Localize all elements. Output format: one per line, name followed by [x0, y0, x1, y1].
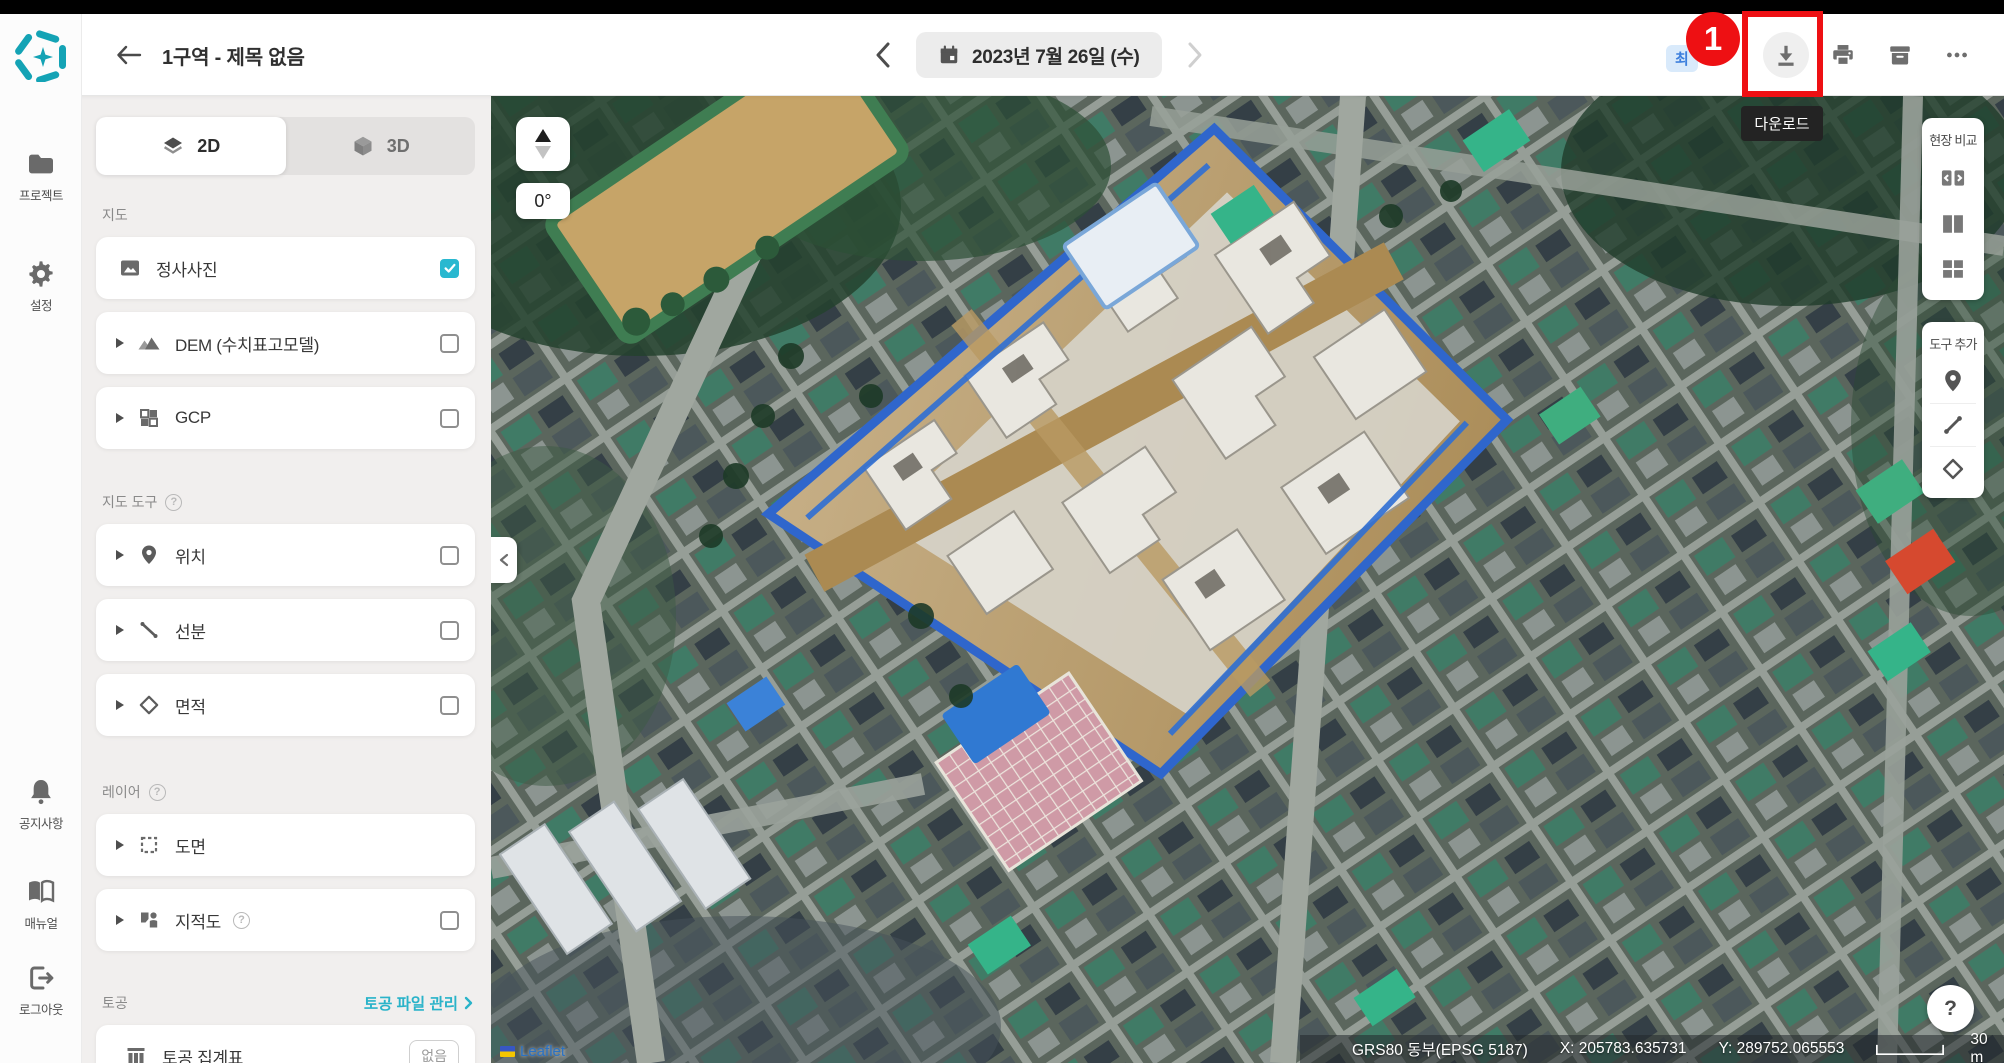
date-navigator: 2023년 7월 26일 (수)	[868, 14, 1210, 96]
rail-item-label: 프로젝트	[19, 185, 63, 204]
expand-caret-icon[interactable]	[116, 338, 124, 348]
expand-caret-icon[interactable]	[116, 915, 124, 925]
line-tool-icon	[1940, 412, 1966, 438]
section-layers-label: 레이어 ?	[102, 782, 475, 802]
toggle-3d[interactable]: 3D	[286, 117, 476, 175]
earthwork-summary-label: 토공 집계표	[162, 1044, 243, 1063]
help-button[interactable]: ?	[1927, 985, 1974, 1032]
section-title: 레이어	[102, 782, 141, 802]
page-title: 1구역 - 제목 없음	[162, 41, 305, 70]
area-checkbox[interactable]	[440, 696, 459, 715]
tool-card-area[interactable]: 면적	[96, 674, 475, 736]
compare-two-pane-button[interactable]	[1930, 201, 1976, 247]
site-compare-panel: 현장 비교	[1922, 118, 1984, 300]
tool-card-label: 선분	[175, 618, 206, 643]
toggle-2d[interactable]: 2D	[96, 117, 286, 175]
scale-bar-icon	[1876, 1043, 1944, 1056]
header-left: 1구역 - 제목 없음	[112, 14, 305, 96]
tool-card-segment[interactable]: 선분	[96, 599, 475, 661]
section-title: 지도	[102, 205, 128, 225]
map-statusbar: GRS80 동부(EPSG 5187) X: 205783.635731 Y: …	[1300, 1035, 2004, 1063]
toggle-2d-label: 2D	[197, 136, 220, 157]
attribution-label: Leaflet	[520, 1043, 565, 1060]
rail-item-logout[interactable]: 로그아웃	[0, 962, 82, 1018]
annotation-highlight-box	[1742, 11, 1823, 97]
rail-item-label: 매뉴얼	[24, 913, 57, 932]
chevron-right-icon	[464, 996, 473, 1010]
rail-item-projects[interactable]: 프로젝트	[0, 148, 82, 204]
polygon-tool-icon	[1940, 456, 1966, 482]
tool-card-label: 위치	[175, 543, 206, 568]
map-scale: 30 m	[1876, 1031, 1999, 1063]
add-area-button[interactable]	[1930, 446, 1976, 490]
line-segment-icon	[137, 618, 161, 642]
rail-item-settings[interactable]: 설정	[0, 258, 82, 314]
link-label: 토공 파일 관리	[364, 992, 458, 1014]
back-button[interactable]	[112, 38, 146, 72]
earthwork-summary-card[interactable]: 토공 집계표 없음	[96, 1025, 475, 1063]
add-location-button[interactable]	[1930, 359, 1976, 403]
bell-icon	[25, 776, 57, 808]
segment-checkbox[interactable]	[440, 621, 459, 640]
annotation-step-badge: 1	[1686, 12, 1740, 66]
cadastral-map-icon	[137, 908, 161, 932]
earthwork-file-manage-link[interactable]: 토공 파일 관리	[364, 992, 473, 1014]
satellite-imagery	[491, 96, 2004, 1063]
rail-item-label: 공지사항	[19, 813, 63, 832]
layer-card-label: 정사사진	[156, 256, 217, 281]
layers-icon	[161, 134, 185, 158]
brand-logo-icon	[15, 30, 67, 82]
logout-icon	[25, 962, 57, 994]
location-pin-icon	[137, 543, 161, 567]
expand-caret-icon[interactable]	[116, 550, 124, 560]
cursor-x-coordinate: X: 205783.635731	[1560, 1040, 1687, 1058]
expand-caret-icon[interactable]	[116, 700, 124, 710]
layer-card-label: GCP	[175, 408, 211, 428]
rail-item-manual[interactable]: 매뉴얼	[0, 876, 82, 932]
four-grid-icon	[1939, 255, 1967, 283]
chevron-right-icon	[1187, 41, 1203, 69]
chevron-left-icon	[498, 553, 510, 567]
ellipsis-icon	[1944, 42, 1970, 68]
orthophoto-checkbox[interactable]	[440, 259, 459, 278]
print-button[interactable]	[1820, 32, 1866, 78]
toggle-3d-label: 3D	[387, 136, 410, 157]
expand-caret-icon[interactable]	[116, 625, 124, 635]
app-rail: 프로젝트 설정 공지사항 매뉴얼 로그아웃	[0, 14, 82, 1063]
leaflet-attribution[interactable]: Leaflet	[500, 1043, 565, 1060]
layer-card-drawing[interactable]: 도면	[96, 814, 475, 876]
arrow-left-icon	[116, 44, 142, 66]
compare-four-grid-button[interactable]	[1930, 246, 1976, 292]
archive-box-icon	[1887, 42, 1913, 68]
dashed-square-icon	[137, 833, 161, 857]
cadastral-checkbox[interactable]	[440, 911, 459, 930]
app-logo[interactable]	[15, 30, 67, 82]
section-map-label: 지도	[102, 205, 475, 225]
calendar-icon	[938, 44, 960, 66]
compass-control[interactable]	[516, 117, 570, 171]
chevron-left-icon	[875, 41, 891, 69]
dem-checkbox[interactable]	[440, 334, 459, 353]
earthwork-none-badge: 없음	[409, 1040, 459, 1063]
expand-caret-icon[interactable]	[116, 413, 124, 423]
section-tools-label: 지도 도구 ?	[102, 492, 475, 512]
rail-item-label: 설정	[30, 295, 52, 314]
map-heading-readout: 0°	[516, 183, 570, 219]
site-compare-label: 현장 비교	[1929, 130, 1976, 149]
layers-sidebar: 2D 3D 지도 정사사진	[82, 96, 491, 1063]
gcp-grid-icon	[137, 406, 161, 430]
image-icon	[118, 256, 142, 280]
crs-label: GRS80 동부(EPSG 5187)	[1352, 1038, 1528, 1060]
location-checkbox[interactable]	[440, 546, 459, 565]
view-mode-toggle: 2D 3D	[96, 117, 475, 175]
location-pin-icon	[1940, 368, 1966, 394]
more-button[interactable]	[1934, 32, 1980, 78]
window-topbar	[0, 0, 2004, 14]
help-circle-icon[interactable]: ?	[233, 912, 250, 929]
layer-card-dem[interactable]: DEM (수치표고모델)	[96, 312, 475, 374]
next-date-button[interactable]	[1180, 35, 1210, 75]
archive-button[interactable]	[1877, 32, 1923, 78]
book-icon	[25, 876, 57, 908]
printer-icon	[1830, 42, 1856, 68]
date-picker-button[interactable]: 2023년 7월 26일 (수)	[916, 32, 1162, 78]
two-pane-icon	[1939, 210, 1967, 238]
help-circle-icon[interactable]: ?	[165, 494, 182, 511]
map-viewport[interactable]: 0° 현장 비교	[491, 96, 2004, 1063]
gcp-checkbox[interactable]	[440, 409, 459, 428]
layer-card-label: DEM (수치표고모델)	[175, 331, 319, 356]
compass-south-icon	[535, 146, 551, 159]
sidebar-collapse-button[interactable]	[491, 537, 517, 583]
compare-slider-icon	[1939, 164, 1967, 192]
add-tool-panel: 도구 추가	[1922, 322, 1984, 498]
download-tooltip: 다운로드	[1741, 106, 1823, 141]
layer-card-gcp[interactable]: GCP	[96, 387, 475, 449]
flag-icon	[500, 1046, 515, 1057]
layer-card-label: 지적도	[175, 908, 221, 933]
layer-card-cadastral[interactable]: 지적도 ?	[96, 889, 475, 951]
rail-item-notice[interactable]: 공지사항	[0, 776, 82, 832]
terrain-icon	[137, 331, 161, 355]
add-tool-label: 도구 추가	[1929, 334, 1976, 353]
section-title: 토공	[102, 993, 128, 1013]
add-line-button[interactable]	[1930, 403, 1976, 447]
table-columns-icon	[124, 1044, 148, 1063]
tool-card-label: 면적	[175, 693, 206, 718]
prev-date-button[interactable]	[868, 35, 898, 75]
layer-card-orthophoto[interactable]: 정사사진	[96, 237, 475, 299]
rail-item-label: 로그아웃	[19, 999, 63, 1018]
help-circle-icon[interactable]: ?	[149, 784, 166, 801]
cursor-y-coordinate: Y: 289752.065553	[1719, 1040, 1845, 1058]
scale-label: 30 m	[1970, 1031, 1999, 1063]
section-earthwork-label: 토공 토공 파일 관리	[102, 993, 475, 1013]
expand-caret-icon[interactable]	[116, 840, 124, 850]
gear-icon	[25, 258, 57, 290]
compass-north-icon	[535, 129, 551, 142]
current-date-label: 2023년 7월 26일 (수)	[972, 42, 1140, 69]
section-title: 지도 도구	[102, 492, 157, 512]
diamond-area-icon	[137, 693, 161, 717]
tool-card-location[interactable]: 위치	[96, 524, 475, 586]
compare-slider-button[interactable]	[1930, 155, 1976, 201]
layer-card-label: 도면	[175, 833, 206, 858]
cube-icon	[351, 134, 375, 158]
folder-icon	[25, 148, 57, 180]
check-icon	[443, 261, 457, 275]
